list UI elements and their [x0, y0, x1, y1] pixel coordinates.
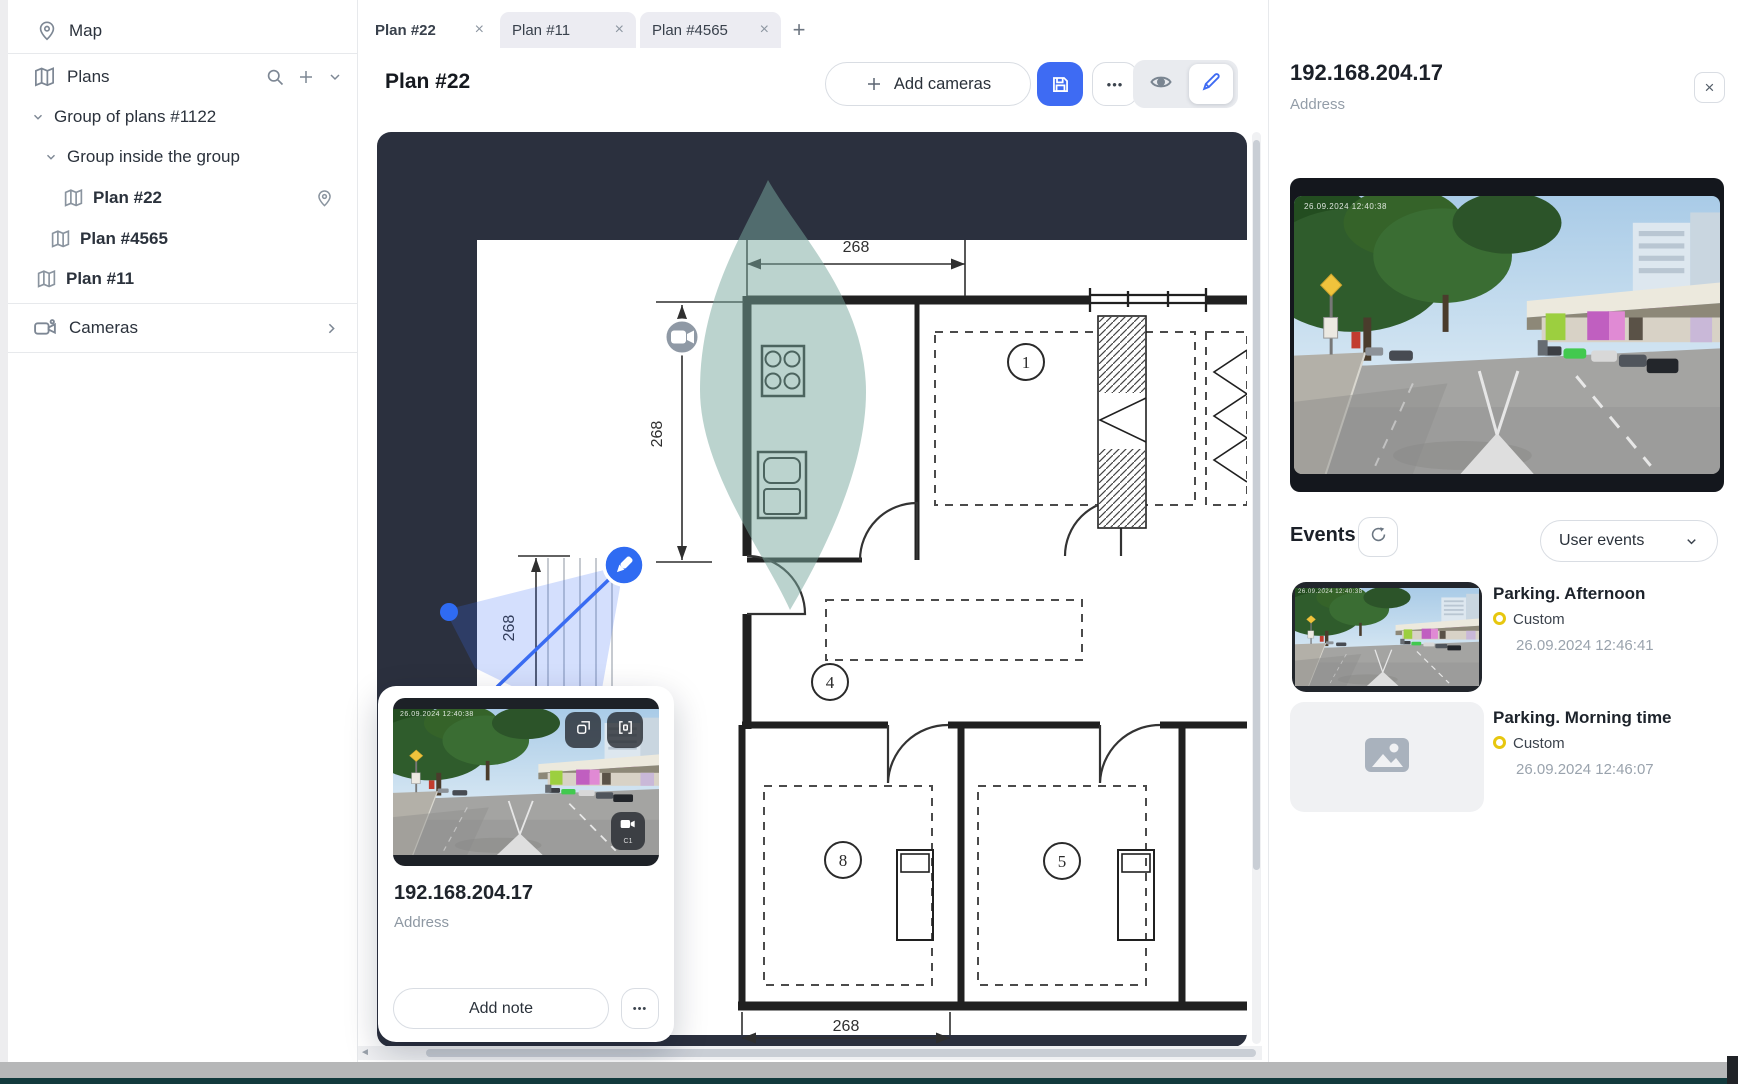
plan-map-icon	[63, 188, 84, 209]
event-list-item[interactable]: 26.09.2024 12:40:38 Parking. Afternoon C…	[1290, 580, 1724, 694]
refresh-icon	[1369, 525, 1388, 549]
tab-label: Plan #11	[512, 22, 570, 39]
chevron-right-icon[interactable]	[323, 320, 340, 337]
events-title: Events	[1290, 524, 1356, 547]
scrollbar-thumb[interactable]	[1253, 140, 1260, 870]
eye-icon	[1149, 70, 1173, 99]
ellipsis-icon: •••	[633, 1003, 648, 1015]
event-type: Custom	[1513, 611, 1565, 628]
sidebar-item-map[interactable]: Map	[8, 10, 357, 52]
dimension-label: 268	[843, 239, 870, 256]
tab-plan-11[interactable]: Plan #11 ×	[500, 12, 636, 48]
event-title: Parking. Afternoon	[1493, 584, 1645, 604]
camera-channel-badge: C1	[611, 812, 645, 850]
plan-horizontal-scrollbar[interactable]: ◄	[358, 1046, 1262, 1060]
plan-vertical-scrollbar[interactable]	[1252, 132, 1261, 1044]
sidebar-divider	[8, 303, 357, 304]
more-actions-button[interactable]: •••	[1092, 62, 1138, 106]
event-time: 26.09.2024 12:46:07	[1516, 761, 1654, 778]
add-note-button[interactable]: Add note	[393, 988, 609, 1029]
pencil-icon	[1200, 71, 1222, 98]
taskbar-accent-strip	[0, 1078, 1738, 1084]
custom-event-badge-icon	[1493, 612, 1506, 625]
open-new-window-icon	[575, 719, 592, 741]
event-title: Parking. Morning time	[1493, 708, 1672, 728]
camera-channel-label: C1	[624, 838, 633, 845]
sidebar-divider	[8, 352, 357, 353]
cameras-label: Cameras	[69, 318, 138, 338]
panel-camera-ip: 192.168.204.17	[1290, 60, 1443, 86]
panel-camera-preview[interactable]: 26.09.2024 12:40:38	[1290, 178, 1724, 492]
map-pin-icon	[36, 20, 58, 42]
camera-preview[interactable]: 26.09.2024 12:40:38 C1	[393, 698, 659, 866]
event-thumbnail[interactable]: 26.09.2024 12:40:38	[1292, 582, 1482, 692]
sidebar-item-cameras[interactable]: Cameras	[8, 306, 357, 350]
close-icon: ×	[1705, 78, 1715, 98]
plan-label: Plan #11	[66, 269, 134, 289]
custom-event-badge-icon	[1493, 736, 1506, 749]
view-mode-button[interactable]	[1145, 68, 1177, 100]
event-filter-label: User events	[1559, 532, 1644, 550]
save-button[interactable]	[1037, 62, 1083, 106]
mode-segmented-control	[1133, 60, 1238, 108]
panel-camera-address: Address	[1290, 96, 1345, 113]
open-in-new-window-button[interactable]	[565, 712, 601, 748]
plan-label: Plan #4565	[80, 229, 168, 249]
ellipsis-icon: •••	[1107, 77, 1124, 92]
popup-camera-ip: 192.168.204.17	[394, 882, 533, 905]
plan-label: Plan #22	[93, 188, 162, 208]
sidebar-section-plans[interactable]: Plans	[8, 56, 357, 98]
event-type: Custom	[1513, 735, 1565, 752]
event-filter-dropdown[interactable]: User events	[1540, 520, 1718, 562]
tab-plan-22[interactable]: Plan #22 ×	[363, 12, 496, 48]
sidebar-item-group-inside[interactable]: Group inside the group	[8, 140, 357, 174]
page-title: Plan #22	[385, 70, 470, 94]
map-label: Map	[69, 21, 102, 41]
sidebar-gutter	[0, 0, 8, 1062]
event-time: 26.09.2024 12:46:41	[1516, 637, 1654, 654]
camera-osd-timestamp: 26.09.2024 12:40:38	[1298, 589, 1363, 595]
cameras-icon	[33, 316, 58, 341]
edit-mode-button[interactable]	[1189, 64, 1233, 104]
group-label: Group of plans #1122	[54, 107, 216, 127]
plus-icon	[865, 75, 883, 93]
sidebar-divider	[8, 53, 357, 54]
add-plan-icon[interactable]	[297, 68, 315, 86]
close-tab-icon[interactable]: ×	[760, 21, 769, 39]
selected-camera-marker[interactable]	[604, 545, 644, 585]
search-icon[interactable]	[265, 67, 285, 87]
open-panel-icon	[617, 719, 634, 741]
plans-map-icon	[33, 66, 56, 89]
plans-label: Plans	[67, 67, 110, 87]
sidebar-item-group-of-plans[interactable]: Group of plans #1122	[8, 100, 357, 134]
camera-osd-timestamp: 26.09.2024 12:40:38	[400, 711, 474, 718]
camera-marker[interactable]	[665, 320, 699, 354]
location-pin-icon[interactable]	[315, 189, 334, 208]
event-thumbnail-placeholder	[1290, 702, 1484, 812]
scrollbar-thumb[interactable]	[426, 1049, 1256, 1057]
save-floppy-icon	[1050, 74, 1071, 95]
close-tab-icon[interactable]: ×	[615, 21, 624, 39]
event-list-item[interactable]: Parking. Morning time Custom 26.09.2024 …	[1290, 700, 1724, 814]
group-label: Group inside the group	[67, 147, 240, 167]
scroll-left-arrow-icon[interactable]: ◄	[360, 1047, 370, 1058]
window-bottom-bar	[0, 1062, 1738, 1078]
room-number: 5	[1058, 852, 1067, 871]
dimension-label: 268	[649, 421, 666, 448]
chevron-down-icon[interactable]	[44, 150, 58, 164]
room-number: 8	[839, 851, 848, 870]
image-placeholder-icon	[1364, 735, 1410, 780]
sidebar-item-plan-11[interactable]: Plan #11	[8, 261, 357, 297]
close-panel-button[interactable]: ×	[1694, 72, 1725, 103]
chevron-down-icon	[1684, 534, 1699, 549]
plan-map-icon	[50, 229, 71, 250]
add-note-label: Add note	[469, 1000, 533, 1018]
sidebar-item-plan-4565[interactable]: Plan #4565	[8, 221, 357, 257]
video-camera-icon	[620, 817, 636, 836]
add-cameras-button[interactable]: Add cameras	[825, 62, 1031, 106]
sidebar-right-border	[357, 0, 358, 1062]
refresh-events-button[interactable]	[1358, 517, 1398, 557]
open-in-panel-button[interactable]	[607, 712, 643, 748]
popup-more-button[interactable]: •••	[621, 988, 659, 1029]
room-number: 1	[1022, 353, 1031, 372]
panel-left-border	[1268, 0, 1269, 1062]
tab-label: Plan #22	[375, 22, 436, 39]
camera-osd-timestamp: 26.09.2024 12:40:38	[1304, 202, 1387, 211]
dimension-label: 268	[833, 1018, 860, 1035]
tab-label: Plan #4565	[652, 22, 728, 39]
window-corner-notch	[1727, 1056, 1738, 1084]
collapse-plans-chevron-icon[interactable]	[327, 69, 343, 85]
new-tab-button[interactable]: +	[787, 16, 811, 44]
close-tab-icon[interactable]: ×	[475, 21, 484, 39]
popup-camera-address: Address	[394, 914, 449, 931]
camera-popup-card: 26.09.2024 12:40:38 C1 192.168.204.17 Ad…	[378, 686, 674, 1042]
room-number: 4	[826, 673, 835, 692]
plan-map-icon	[36, 269, 57, 290]
fov-drag-handle[interactable]	[440, 603, 458, 621]
tab-plan-4565[interactable]: Plan #4565 ×	[640, 12, 781, 48]
add-cameras-label: Add cameras	[894, 75, 991, 94]
chevron-down-icon[interactable]	[31, 110, 45, 124]
sidebar-item-plan-22[interactable]: Plan #22	[8, 180, 357, 216]
